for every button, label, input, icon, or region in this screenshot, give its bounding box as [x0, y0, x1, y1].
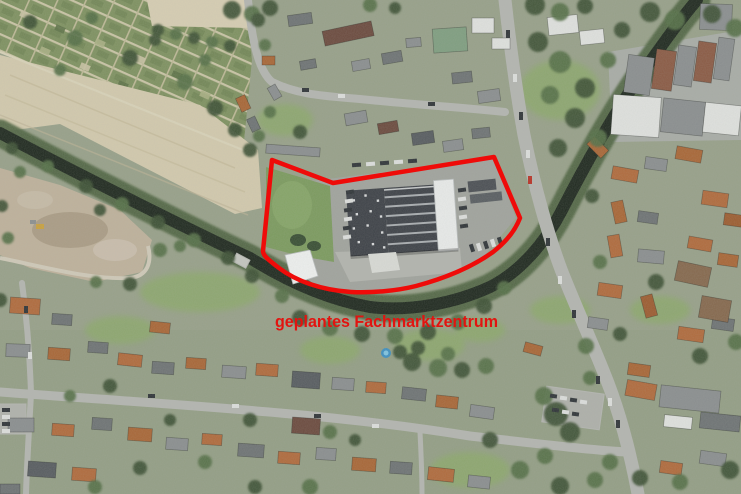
aerial-map: geplantes Fachmarktzentrum	[0, 0, 741, 494]
site-label: geplantes Fachmarktzentrum	[275, 312, 498, 331]
photo-grain	[0, 0, 741, 494]
aerial-photo: geplantes Fachmarktzentrum	[0, 0, 741, 494]
